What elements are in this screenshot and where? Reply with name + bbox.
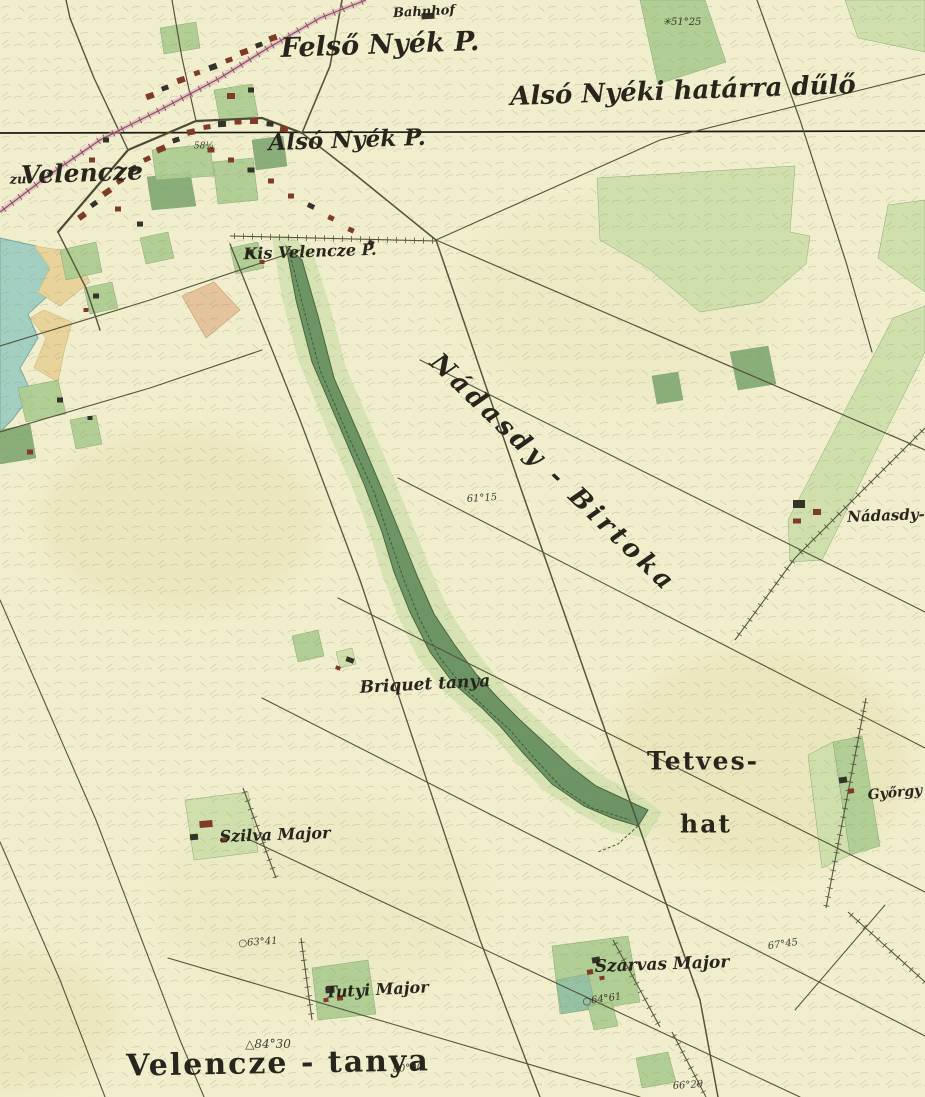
building <box>208 148 215 153</box>
building <box>115 207 121 212</box>
building <box>234 119 241 124</box>
building <box>248 168 255 173</box>
building <box>218 121 226 128</box>
building <box>137 222 143 227</box>
building <box>280 125 289 132</box>
building <box>250 118 258 124</box>
building <box>89 158 95 163</box>
building <box>337 995 343 1001</box>
building <box>93 294 99 299</box>
building <box>203 124 211 130</box>
building <box>221 837 227 843</box>
building <box>793 519 801 524</box>
building <box>84 308 89 312</box>
building <box>103 138 109 143</box>
building <box>325 987 334 994</box>
historical-map: BahnhofFelső Nyék P.Alsó Nyéki határra d… <box>0 0 925 1097</box>
building <box>227 93 235 99</box>
building <box>848 788 855 794</box>
building <box>57 398 63 403</box>
building <box>421 13 434 20</box>
building <box>793 500 805 508</box>
building <box>247 250 254 255</box>
building <box>813 509 821 515</box>
building <box>199 820 213 828</box>
building <box>248 88 254 93</box>
building <box>228 158 234 163</box>
building <box>88 416 93 420</box>
building <box>268 179 274 184</box>
building <box>266 121 273 126</box>
building <box>260 260 265 264</box>
building <box>27 450 33 455</box>
map-canvas <box>0 0 925 1097</box>
building <box>323 998 328 1002</box>
building <box>839 776 848 783</box>
building <box>288 194 294 199</box>
building <box>599 976 605 981</box>
building <box>587 969 594 975</box>
building <box>190 834 198 841</box>
